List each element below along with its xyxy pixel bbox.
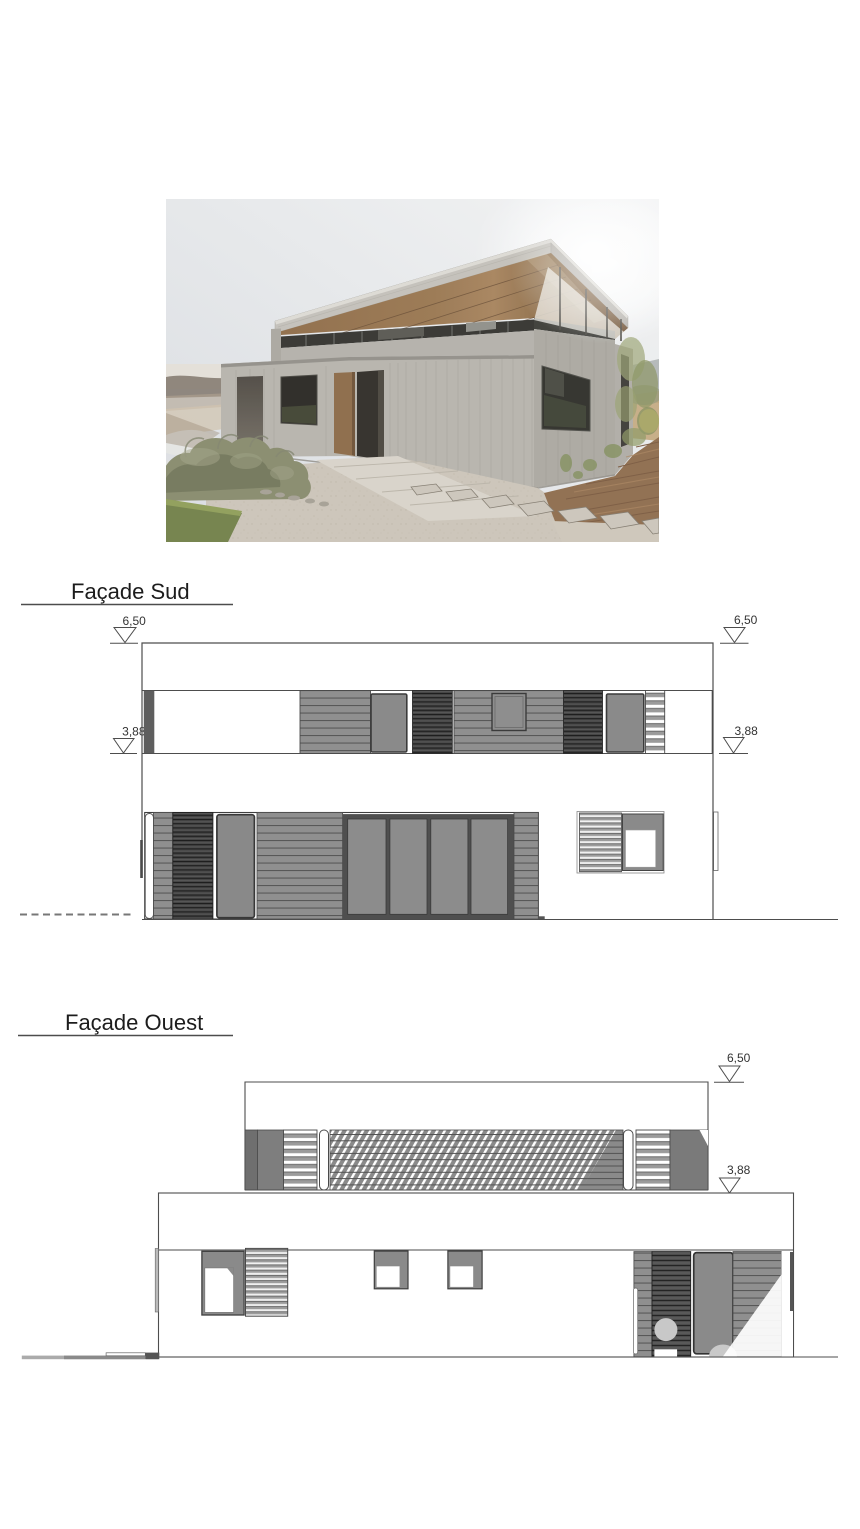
svg-text:6,50: 6,50	[727, 1051, 751, 1065]
svg-text:6,50: 6,50	[123, 614, 147, 628]
svg-text:3,88: 3,88	[735, 724, 759, 738]
svg-text:3,88: 3,88	[727, 1163, 751, 1177]
svg-text:6,50: 6,50	[734, 613, 758, 627]
svg-text:Façade Ouest: Façade Ouest	[65, 1010, 203, 1035]
svg-text:Façade Sud: Façade Sud	[71, 579, 190, 604]
